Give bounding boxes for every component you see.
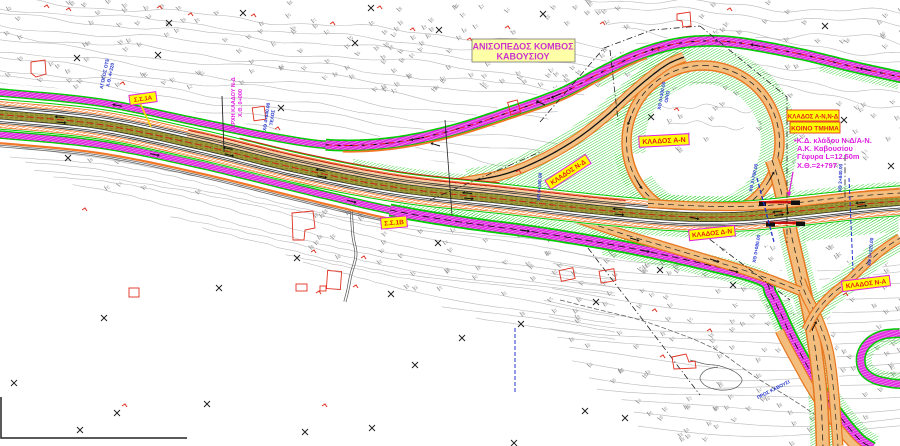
svg-text:ΑΡΧΗ ΚΛΑΔΟΥ Ν-Δ: ΑΡΧΗ ΚΛΑΔΟΥ Ν-Δ xyxy=(231,77,237,128)
svg-text:Γέφυρα L=12.50m: Γέφυρα L=12.50m xyxy=(797,152,860,161)
svg-text:ΚΑΒΟΥΣΙΟΥ: ΚΑΒΟΥΣΙΟΥ xyxy=(497,52,550,62)
svg-text:Χ.Θ.=2+797: Χ.Θ.=2+797 xyxy=(797,161,837,170)
svg-text:ΑΝΙΣΟΠΕΔΟΣ ΚΟΜΒΟΣ: ΑΝΙΣΟΠΕΔΟΣ ΚΟΜΒΟΣ xyxy=(472,42,574,52)
svg-text:ΧΘ 2+840.00: ΧΘ 2+840.00 xyxy=(838,163,845,192)
svg-text:ΚΛΑΔΟΣ Α-Ν,Ν-Δ: ΚΛΑΔΟΣ Α-Ν,Ν-Δ xyxy=(788,114,839,121)
svg-text:ΚΟΙΝΟ ΤΜΗΜΑ: ΚΟΙΝΟ ΤΜΗΜΑ xyxy=(791,126,839,133)
svg-text:Χ.Θ. 0+000: Χ.Θ. 0+000 xyxy=(238,89,244,117)
